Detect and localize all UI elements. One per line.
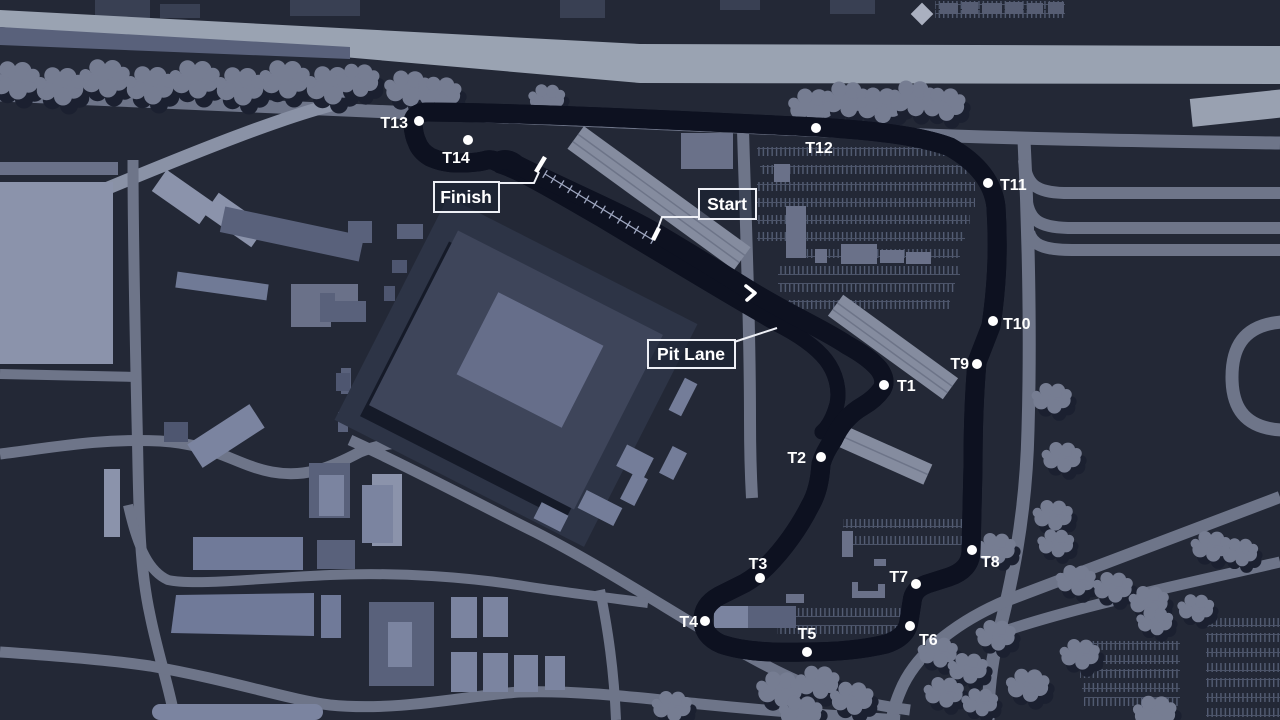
svg-text:T13: T13 [380, 115, 408, 132]
svg-text:T11: T11 [1000, 177, 1027, 194]
svg-text:T14: T14 [442, 150, 470, 167]
svg-text:T5: T5 [798, 626, 817, 643]
svg-text:T1: T1 [897, 378, 916, 395]
svg-text:T3: T3 [749, 556, 768, 573]
svg-text:T7: T7 [889, 569, 908, 586]
svg-text:T9: T9 [950, 356, 969, 373]
svg-text:Finish: Finish [440, 187, 492, 207]
svg-text:T8: T8 [981, 554, 1000, 571]
svg-text:T4: T4 [679, 614, 698, 631]
svg-text:T6: T6 [919, 632, 938, 649]
svg-text:Pit Lane: Pit Lane [657, 344, 725, 364]
svg-text:T12: T12 [805, 140, 833, 157]
svg-text:T10: T10 [1003, 316, 1031, 333]
svg-text:Start: Start [707, 194, 747, 214]
svg-text:T2: T2 [787, 450, 806, 467]
